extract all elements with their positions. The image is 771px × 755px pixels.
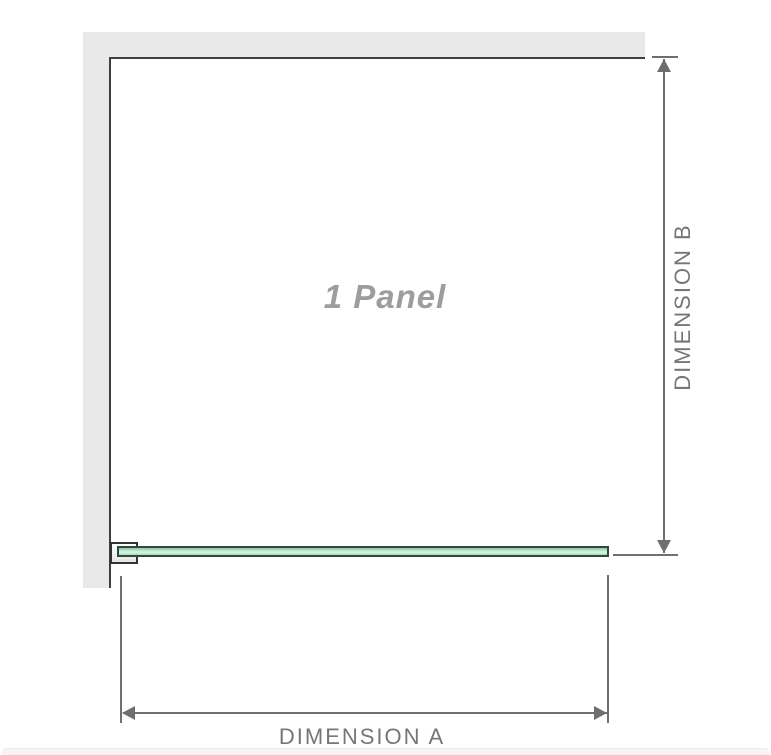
panel-top-edge (109, 57, 645, 59)
dim-b-bottom-tick (613, 554, 678, 556)
dim-b-line (663, 59, 665, 553)
dim-b-label: DIMENSION B (670, 207, 696, 407)
arrow-up-icon (657, 59, 671, 72)
dim-a-label: DIMENSION A (212, 724, 512, 750)
panel-left-edge (109, 57, 111, 588)
dim-b-top-tick (652, 56, 678, 58)
dim-a-line (123, 712, 607, 714)
arrow-down-icon (657, 540, 671, 553)
arrow-right-icon (594, 706, 607, 720)
glass-panel-bar (117, 546, 609, 557)
dim-a-ext-left (120, 576, 122, 723)
panel-label: 1 Panel (260, 277, 510, 317)
bottom-edge-band (2, 748, 769, 755)
diagram-canvas: DIMENSION B DIMENSION A 1 Panel (0, 0, 771, 755)
wall-top (83, 32, 645, 58)
wall-left (83, 32, 109, 588)
arrow-left-icon (122, 706, 135, 720)
dim-a-ext-right (607, 575, 609, 723)
